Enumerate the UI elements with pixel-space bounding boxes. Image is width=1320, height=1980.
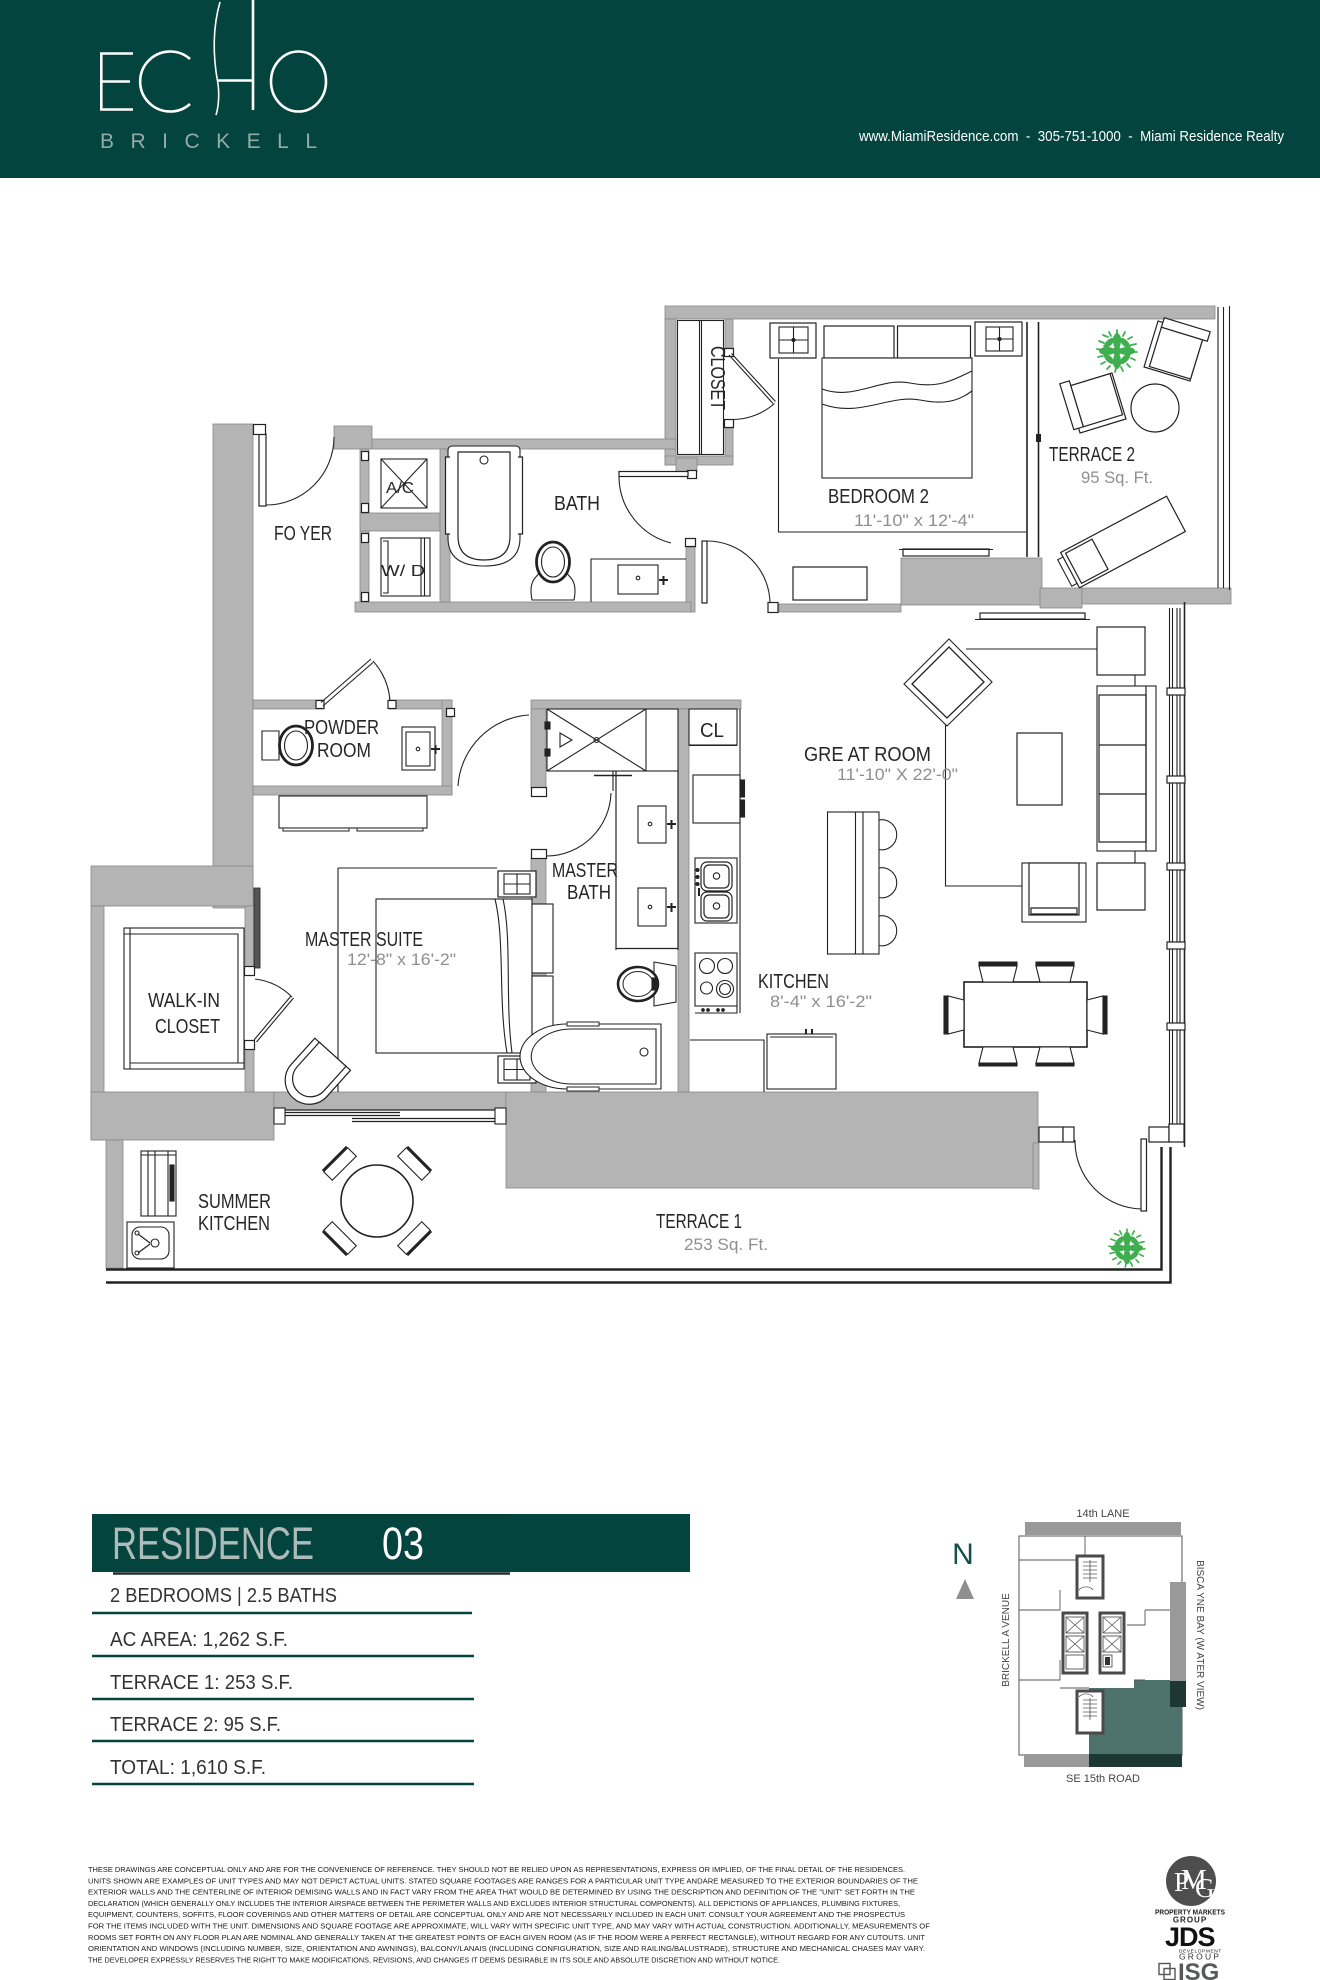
svg-text:A/C: A/C bbox=[386, 480, 414, 497]
svg-text:BISCA YNE BAY (W ATER VIEW): BISCA YNE BAY (W ATER VIEW) bbox=[1194, 1560, 1205, 1710]
svg-text:TERRACE 1: 253 S.F.: TERRACE 1: 253 S.F. bbox=[110, 1672, 293, 1694]
svg-text:EXTERIOR WALLS AND THE CENTERL: EXTERIOR WALLS AND THE CENTERLINE OF INT… bbox=[88, 1888, 915, 1897]
svg-text:W/ D: W/ D bbox=[381, 563, 425, 580]
svg-text:2 BEDROOMS | 2.5 BATHS: 2 BEDROOMS | 2.5 BATHS bbox=[110, 1585, 337, 1607]
svg-text:SUMMER: SUMMER bbox=[198, 1191, 271, 1213]
svg-text:TERRACE 2: 95 S.F.: TERRACE 2: 95 S.F. bbox=[110, 1714, 281, 1736]
svg-text:www.MiamiResidence.com - 305: www.MiamiResidence.com - 305-751-1000 - … bbox=[858, 128, 1284, 145]
svg-text:G: G bbox=[1195, 1873, 1215, 1903]
svg-text:11'-10" x 12'-4": 11'-10" x 12'-4" bbox=[854, 511, 974, 530]
svg-text:KITCHEN: KITCHEN bbox=[198, 1213, 270, 1235]
svg-text:BEDROOM 2: BEDROOM 2 bbox=[828, 486, 929, 508]
svg-text:TERRACE 2: TERRACE 2 bbox=[1049, 444, 1135, 466]
svg-text:MASTER SUITE: MASTER SUITE bbox=[305, 929, 423, 951]
svg-text:POWDER: POWDER bbox=[304, 717, 379, 739]
svg-text:JDS: JDS bbox=[1165, 1922, 1215, 1952]
svg-text:N: N bbox=[952, 1538, 974, 1571]
svg-text:CL: CL bbox=[700, 720, 724, 742]
svg-text:TOTAL: 1,610 S.F.: TOTAL: 1,610 S.F. bbox=[110, 1757, 266, 1779]
svg-text:GRE AT ROOM: GRE AT ROOM bbox=[804, 744, 931, 766]
svg-text:14th LANE: 14th LANE bbox=[1076, 1508, 1129, 1520]
svg-text:ROOMS SET FORTH ON ANY FLOOR P: ROOMS SET FORTH ON ANY FLOOR PLAN ARE NO… bbox=[88, 1933, 925, 1942]
svg-text:TERRACE 1: TERRACE 1 bbox=[656, 1211, 742, 1233]
svg-text:11'-10" X 22'-0": 11'-10" X 22'-0" bbox=[837, 765, 958, 784]
svg-text:8'-4" x 16'-2": 8'-4" x 16'-2" bbox=[770, 992, 872, 1011]
svg-text:03: 03 bbox=[382, 1518, 424, 1569]
svg-text:ORIENTATION AND WINDOWS (INCLU: ORIENTATION AND WINDOWS (INCLUDING NUMBE… bbox=[88, 1944, 925, 1953]
svg-text:EQUIPMENT, COUNTERS, SOFFITS,: EQUIPMENT, COUNTERS, SOFFITS, FLOOR COVE… bbox=[88, 1910, 905, 1919]
svg-text:CLOSET: CLOSET bbox=[155, 1016, 220, 1038]
svg-text:12'-8" x 16'-2": 12'-8" x 16'-2" bbox=[347, 950, 456, 969]
svg-text:SE 15th ROAD: SE 15th ROAD bbox=[1066, 1773, 1140, 1785]
svg-text:THESE DRAWINGS ARE CONCEPTUAL: THESE DRAWINGS ARE CONCEPTUAL ONLY AND A… bbox=[88, 1865, 905, 1874]
svg-text:AC AREA: 1,262 S.F.: AC AREA: 1,262 S.F. bbox=[110, 1629, 288, 1651]
svg-text:BRICKELL A VENUE: BRICKELL A VENUE bbox=[1001, 1593, 1012, 1687]
svg-text:UNITS SHOWN ARE EXAMPLES OF UN: UNITS SHOWN ARE EXAMPLES OF UNIT TYPES A… bbox=[88, 1876, 918, 1885]
svg-text:BATH: BATH bbox=[554, 493, 600, 515]
svg-text:FOR THE ITEMS INCLUDED WITH TH: FOR THE ITEMS INCLUDED WITH THE UNIT. DI… bbox=[88, 1922, 930, 1931]
svg-text:253 Sq. Ft.: 253 Sq. Ft. bbox=[684, 1235, 768, 1254]
svg-text:MASTER: MASTER bbox=[552, 860, 618, 882]
svg-text:CLOSET: CLOSET bbox=[706, 346, 728, 410]
svg-text:BRICKELL: BRICKELL bbox=[100, 130, 334, 153]
svg-text:KITCHEN: KITCHEN bbox=[758, 971, 829, 993]
svg-text:THE DEVELOPER EXPRESSLY RESERV: THE DEVELOPER EXPRESSLY RESERVES THE RIG… bbox=[88, 1955, 780, 1964]
svg-text:ROOM: ROOM bbox=[317, 740, 371, 762]
svg-text:ISG: ISG bbox=[1178, 1959, 1219, 1980]
svg-text:DECLARATION (WHICH GENERALLY O: DECLARATION (WHICH GENERALLY ONLY INCLUD… bbox=[88, 1899, 900, 1908]
svg-text:RESIDENCE: RESIDENCE bbox=[112, 1518, 314, 1569]
svg-text:WALK-IN: WALK-IN bbox=[148, 990, 220, 1012]
svg-text:BATH: BATH bbox=[567, 882, 611, 904]
svg-text:FO YER: FO YER bbox=[274, 523, 332, 545]
svg-text:95 Sq. Ft.: 95 Sq. Ft. bbox=[1081, 468, 1153, 487]
